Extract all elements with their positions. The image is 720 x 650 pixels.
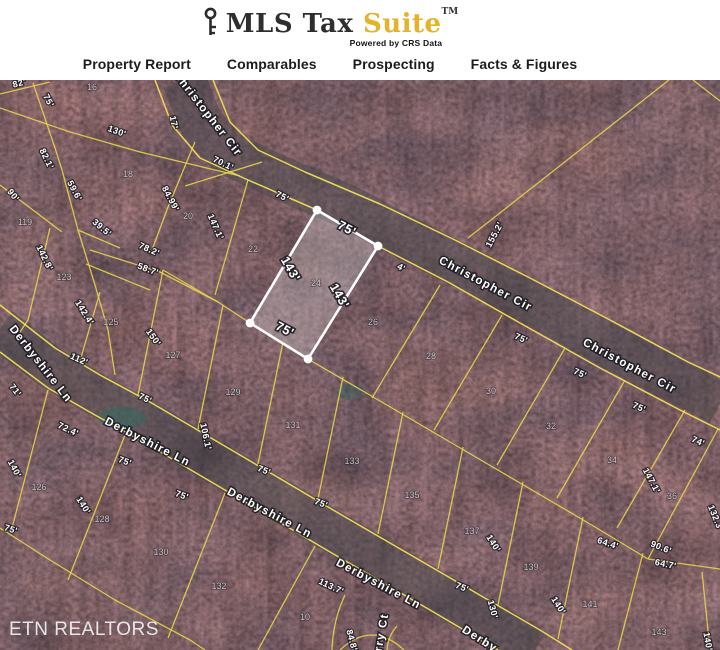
lot-number: 16 [87,82,97,92]
lot-number: 130 [153,547,168,557]
parcel-map[interactable]: ETN REALTORS Christopher CirChristopher … [0,80,720,650]
lot-number: 36 [667,491,677,501]
lot-number: 119 [18,217,32,227]
nav-facts-figures[interactable]: Facts & Figures [471,56,578,72]
lot-number: 30 [486,386,496,396]
lot-number: 20 [183,211,193,221]
lot-number: 135 [404,490,419,500]
lot-number: 139 [523,562,538,572]
lot-number: 128 [94,514,109,524]
lot-number: 133 [344,456,359,466]
lot-number: 18 [123,169,133,179]
trademark: TM [442,7,459,17]
parcel-corner-node [313,206,322,215]
key-icon [202,7,219,37]
lot-number: 10 [300,612,310,622]
lot-number: 126 [31,482,46,492]
lot-number: 123 [56,272,71,282]
lot-number: 141 [582,599,597,609]
main-nav: Property Report Comparables Prospecting … [83,56,577,72]
lot-number: 22 [248,244,258,254]
nav-comparables[interactable]: Comparables [227,56,317,72]
lot-number: 24 [311,278,321,288]
brand-text: MLS Tax SuiteTM [226,8,458,37]
lot-number: 125 [103,317,118,327]
app-header: MLS Tax SuiteTM Powered by CRS Data Prop… [0,0,720,80]
lot-number: 132 [211,581,226,591]
nav-prospecting[interactable]: Prospecting [353,56,435,72]
lot-number: 131 [285,420,300,430]
lot-number: 32 [546,421,556,431]
powered-by-tagline: Powered by CRS Data [202,38,458,48]
lot-number: 28 [426,351,436,361]
parcel-corner-node [374,242,383,251]
parcel-corner-node [246,319,255,328]
lot-number: 26 [368,317,378,327]
brand-suite-text: Suite [363,9,442,39]
lot-number: 127 [165,350,180,360]
aerial-parcel-map-svg[interactable]: ETN REALTORS Christopher CirChristopher … [0,80,720,650]
lot-number: 137 [464,526,479,536]
lot-number: 143 [651,627,666,637]
parcel-corner-node [304,355,313,364]
mls-tax-suite-logo: MLS Tax SuiteTM Powered by CRS Data [202,7,458,48]
lot-number: 129 [225,387,240,397]
lot-number: 34 [607,455,617,465]
nav-property-report[interactable]: Property Report [83,56,191,72]
etn-realtors-watermark: ETN REALTORS [9,619,159,640]
